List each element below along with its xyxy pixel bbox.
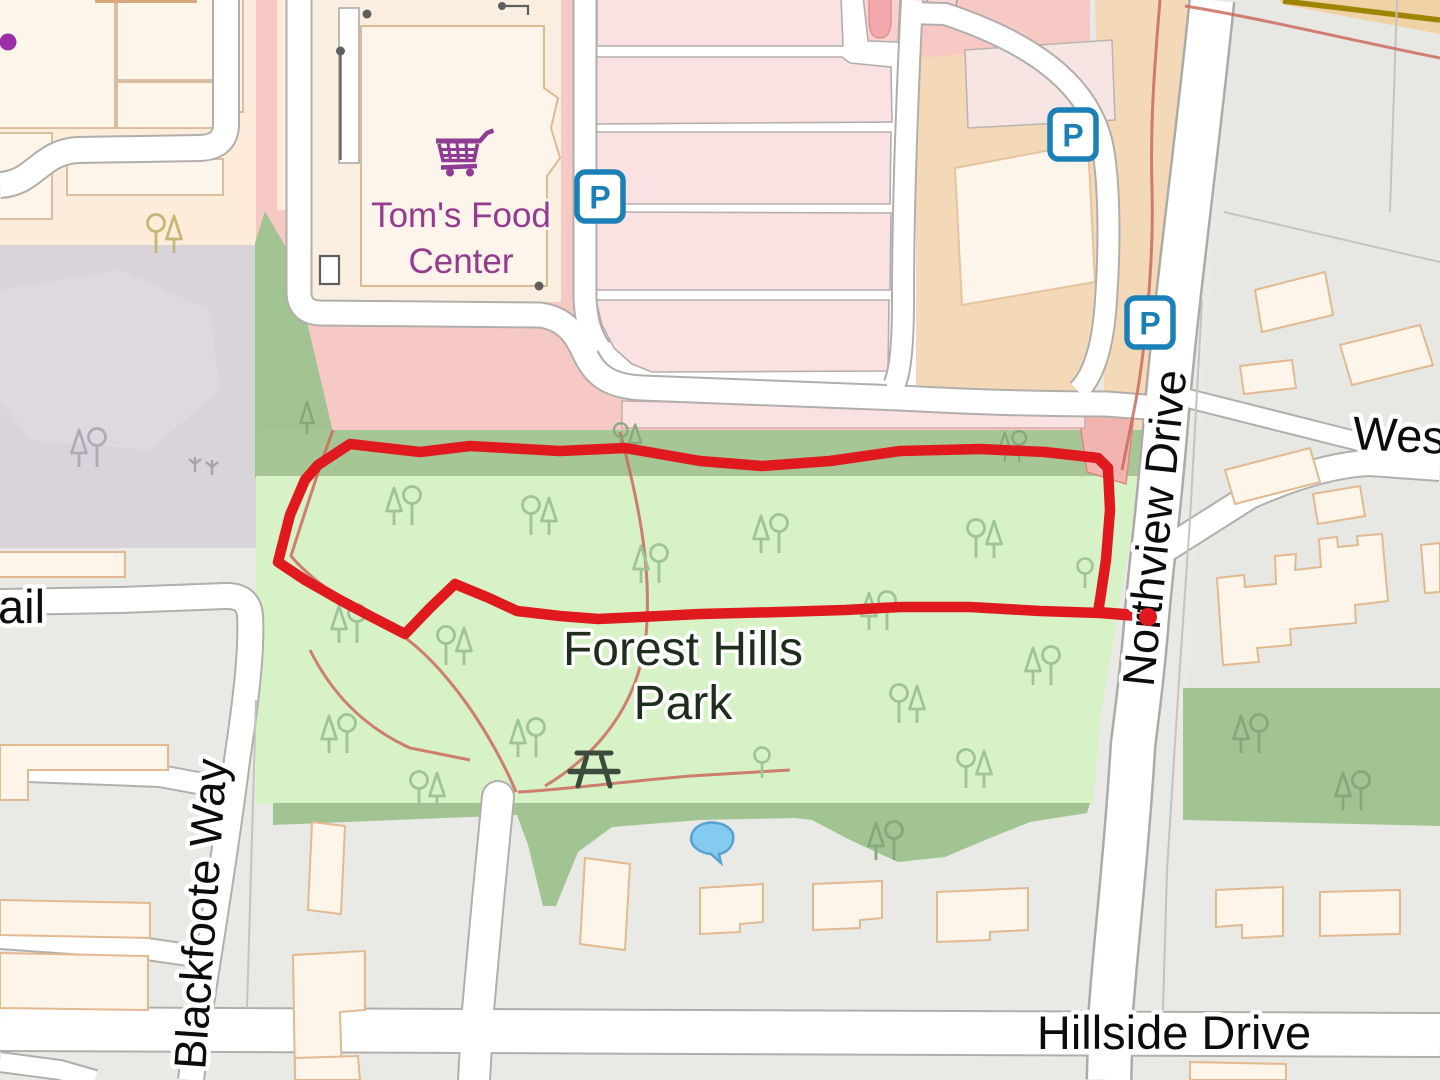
svg-text:Park: Park [634, 677, 734, 730]
svg-text:Tom's Food: Tom's Food [371, 196, 551, 235]
svg-text:Forest Hills: Forest Hills [563, 623, 803, 676]
svg-text:ail: ail [0, 580, 45, 633]
svg-text:Hillside Drive: Hillside Drive [1037, 1006, 1311, 1059]
svg-text:Center: Center [408, 242, 513, 281]
